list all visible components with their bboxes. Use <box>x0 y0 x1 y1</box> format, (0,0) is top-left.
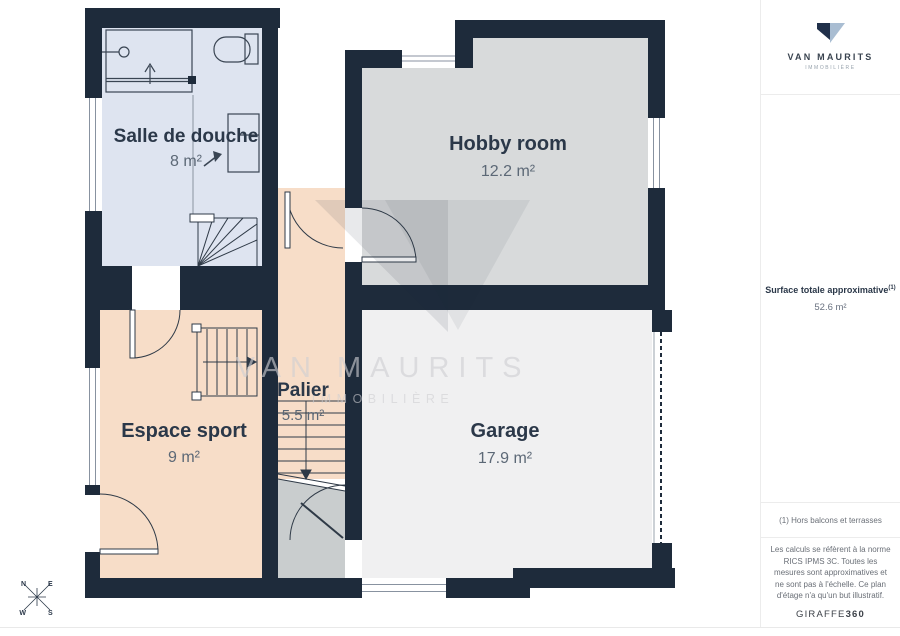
window-salle-left <box>85 98 100 211</box>
footnote-section: (1) Hors balcons et terrasses <box>761 503 900 538</box>
surface-total-label: Surface totale approximative(1) <box>765 285 895 295</box>
floor-plan-page: VAN MAURITS IMMOBILIÈRE Salle de douche … <box>0 0 900 636</box>
room-area-salle-de-douche: 8 m² <box>170 153 203 170</box>
room-area-palier: 5.5 m² <box>282 407 325 424</box>
compass-w: W <box>19 610 26 617</box>
brand-logo-icon <box>817 23 845 45</box>
room-area-espace-sport: 9 m² <box>168 449 201 466</box>
window-hobby-right <box>648 118 665 188</box>
floor-plan: VAN MAURITS IMMOBILIÈRE Salle de douche … <box>0 0 760 636</box>
window-espace-left <box>85 368 100 485</box>
brand-name: VAN MAURITS <box>787 52 873 62</box>
room-garage <box>362 310 652 578</box>
disclaimer-text: Les calculs se réfèrent à la norme RICS … <box>769 544 892 602</box>
disclaimer-section: Les calculs se réfèrent à la norme RICS … <box>761 538 900 626</box>
room-salle-de-douche <box>102 28 262 266</box>
footnote-text: (1) Hors balcons et terrasses <box>779 516 882 525</box>
window-hobby-top <box>402 50 455 68</box>
room-espace-sport <box>100 310 262 578</box>
surface-section: Surface totale approximative(1) 52.6 m² <box>761 95 900 503</box>
garage-door-right <box>652 332 672 543</box>
room-area-garage: 17.9 m² <box>478 450 533 467</box>
compass-s: S <box>48 610 53 617</box>
room-label-hobby-room: Hobby room <box>449 133 567 155</box>
room-label-espace-sport: Espace sport <box>121 420 247 442</box>
compass-n: N <box>21 581 26 588</box>
room-label-garage: Garage <box>471 420 540 442</box>
room-label-palier: Palier <box>277 380 329 401</box>
surface-total-value: 52.6 m² <box>814 302 846 313</box>
page-bottom-divider <box>0 627 900 628</box>
surface-total-text: Surface totale approximative <box>765 285 888 295</box>
room-area-hobby-room: 12.2 m² <box>481 163 536 180</box>
compass-icon: N E W S <box>19 581 53 617</box>
room-label-salle-de-douche: Salle de douche <box>114 126 259 147</box>
provider-brand: GIRAFFE360 <box>796 609 865 620</box>
sidebar: VAN MAURITS IMMOBILIÈRE Surface totale a… <box>760 0 900 627</box>
provider-suffix: 360 <box>846 609 865 620</box>
compass-e: E <box>48 581 53 588</box>
watermark-tagline: IMMOBILIÈRE <box>312 391 454 406</box>
brand-tagline: IMMOBILIÈRE <box>805 65 855 71</box>
shower-handle-icon <box>188 76 196 84</box>
surface-footnote-marker: (1) <box>888 285 895 291</box>
window-garage-bottom <box>362 578 446 598</box>
brand-section: VAN MAURITS IMMOBILIÈRE <box>761 0 900 95</box>
provider-name: GIRAFFE <box>796 609 846 620</box>
understairs-area <box>278 479 345 578</box>
